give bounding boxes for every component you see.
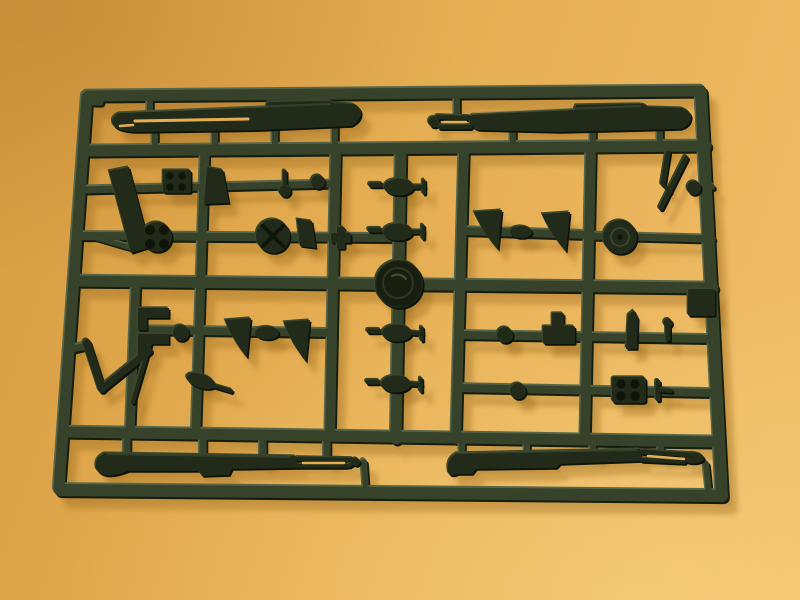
sprue-photo: Injection-molded plastic model kit sprue… (0, 0, 800, 600)
photo-model-kit-sprue: Injection-molded plastic model kit sprue… (0, 0, 800, 600)
